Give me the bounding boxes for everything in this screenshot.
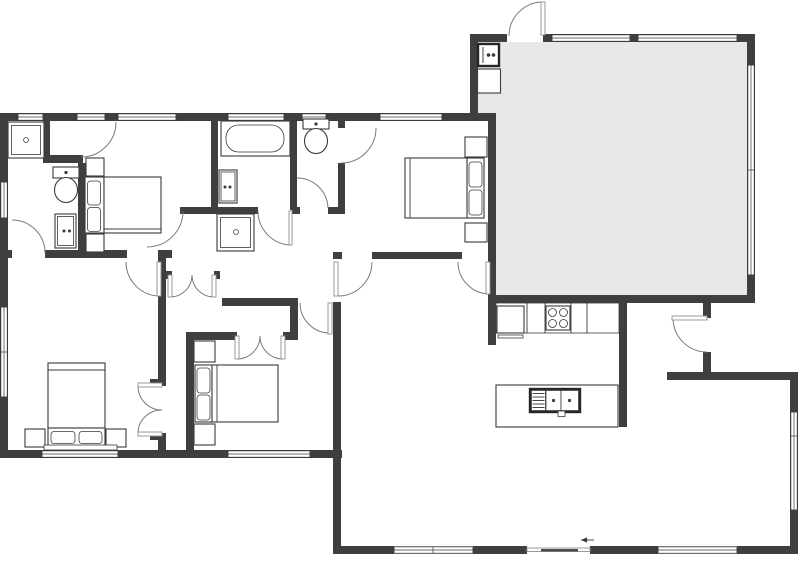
window — [118, 114, 176, 121]
floor-plan-drawing — [0, 0, 800, 561]
window — [638, 35, 737, 42]
window — [380, 114, 442, 121]
window — [228, 451, 310, 458]
shower-icon — [8, 122, 44, 158]
bathtub-icon — [221, 121, 290, 156]
door — [300, 303, 332, 334]
door — [126, 262, 161, 296]
bed — [85, 158, 161, 252]
door — [12, 220, 45, 253]
shower-icon — [217, 214, 254, 251]
double-door — [168, 275, 216, 297]
vanity-sink-icon — [55, 214, 76, 248]
water-heater-icon — [478, 44, 499, 66]
entry-door — [509, 2, 545, 36]
island-sink-icon — [530, 389, 580, 417]
window — [77, 114, 105, 121]
door — [334, 262, 372, 296]
utility-box — [478, 69, 501, 93]
bed — [25, 363, 126, 450]
door — [258, 211, 292, 245]
toilet-icon — [53, 167, 79, 203]
window — [748, 65, 755, 275]
window — [658, 547, 737, 554]
window — [18, 114, 43, 121]
closet-double-door — [235, 336, 285, 359]
window — [228, 114, 284, 121]
window — [1, 182, 8, 218]
toilet-icon — [303, 119, 329, 154]
kitchen-island — [496, 385, 618, 427]
bed — [405, 137, 487, 242]
window — [552, 35, 630, 42]
door — [672, 316, 707, 352]
vanity-sink-icon — [219, 170, 237, 203]
window — [394, 547, 473, 554]
door — [81, 122, 116, 157]
closet-double-door — [138, 383, 162, 436]
window — [1, 307, 8, 397]
garage-room — [478, 42, 747, 295]
sliding-door — [527, 537, 594, 551]
door — [341, 128, 376, 163]
floor-plan-canvas — [0, 0, 800, 561]
cooktop-icon — [546, 306, 570, 330]
door — [297, 178, 328, 208]
window — [791, 412, 798, 510]
door — [458, 262, 490, 294]
refrigerator-icon — [497, 306, 524, 338]
window — [42, 451, 118, 458]
